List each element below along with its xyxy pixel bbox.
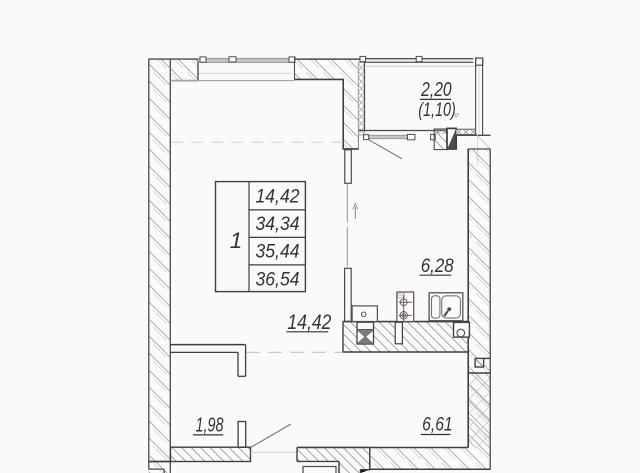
svg-text:6,61: 6,61 [422, 415, 453, 436]
svg-text:34,34: 34,34 [256, 214, 300, 235]
svg-text:(1,10): (1,10) [418, 99, 456, 121]
svg-text:1: 1 [230, 228, 243, 253]
svg-text:2,20: 2,20 [420, 79, 451, 101]
svg-text:36,54: 36,54 [256, 270, 300, 291]
svg-text:35,44: 35,44 [256, 242, 300, 263]
svg-text:6,28: 6,28 [421, 255, 454, 277]
svg-text:14,42: 14,42 [256, 187, 300, 208]
svg-text:1,98: 1,98 [196, 415, 224, 437]
svg-text:14,42: 14,42 [287, 311, 331, 334]
